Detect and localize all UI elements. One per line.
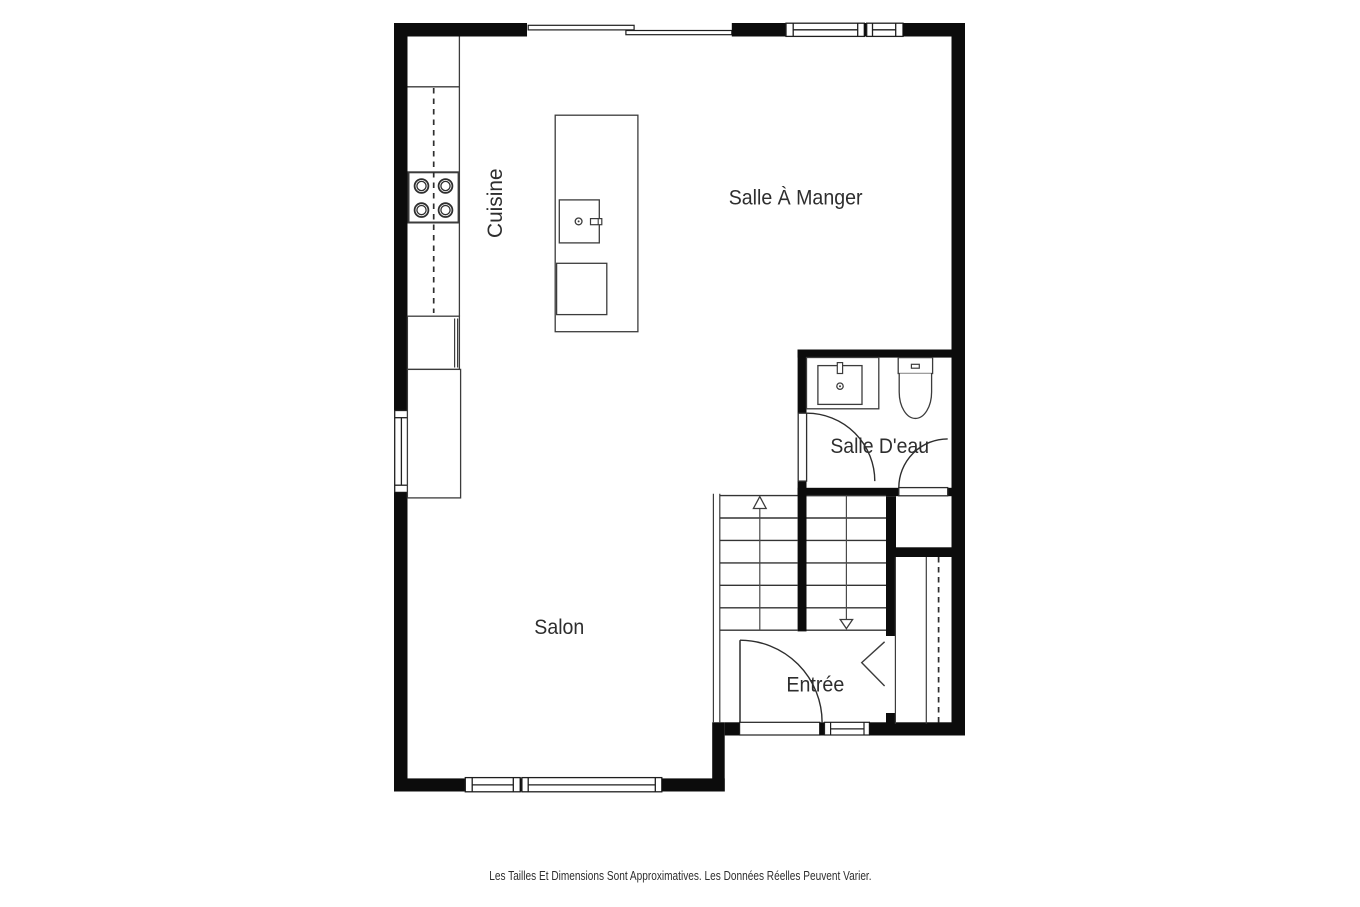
svg-text:Les Tailles Et Dimensions Sont: Les Tailles Et Dimensions Sont Approxima…: [489, 869, 871, 883]
svg-text:Salon: Salon: [534, 616, 584, 639]
svg-text:Salle D'eau: Salle D'eau: [830, 435, 929, 458]
svg-text:Entrée: Entrée: [786, 673, 844, 696]
svg-text:Salle À Manger: Salle À Manger: [729, 187, 863, 210]
svg-text:Cuisine: Cuisine: [484, 168, 507, 238]
